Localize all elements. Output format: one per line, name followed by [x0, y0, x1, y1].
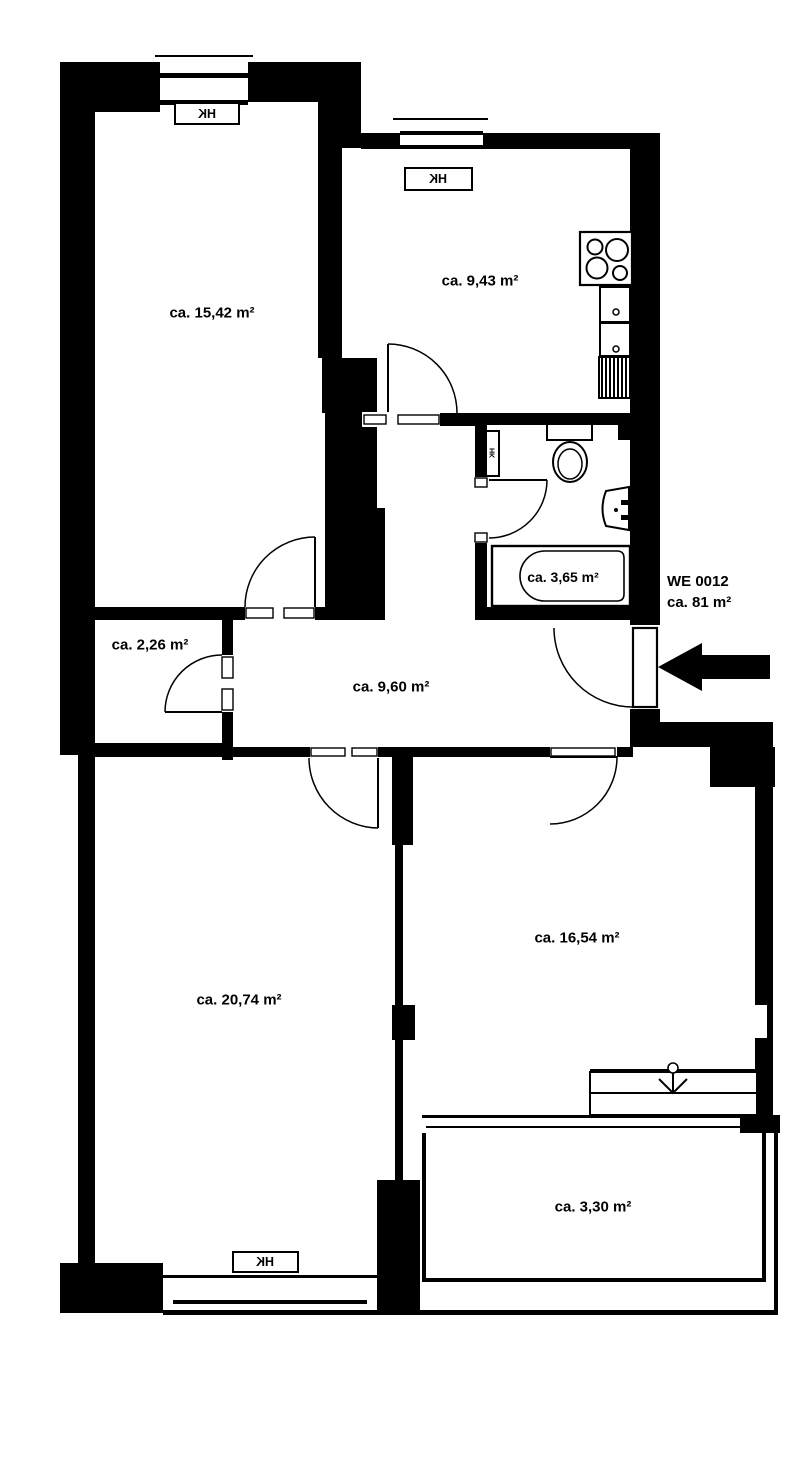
radiator-label-bottom: HK — [256, 1255, 274, 1269]
radiator-label-kitchen: HK — [429, 172, 447, 186]
floor-plan-drawing — [0, 0, 797, 1471]
stove-icon — [580, 232, 632, 285]
kitchen-cabinets — [600, 287, 630, 356]
radiator-label-bathroom: HK — [490, 448, 497, 458]
unit-area: ca. 81 m² — [667, 592, 731, 613]
room-label-kitchen: ca. 9,43 m² — [442, 273, 519, 290]
unit-number: WE 0012 — [667, 571, 731, 592]
bathroom-door — [474, 477, 547, 543]
outer-sill-line — [163, 1310, 778, 1315]
room-label-bathroom: ca. 3,65 m² — [527, 569, 599, 585]
bottom-left-room-door — [309, 745, 378, 828]
unit-info: WE 0012 ca. 81 m² — [667, 571, 731, 613]
entrance-door — [554, 626, 660, 709]
window-top-left-room — [155, 55, 253, 105]
floor-plan: ca. 15,42 m² ca. 9,43 m² ca. 3,65 m² ca.… — [0, 0, 797, 1471]
radiator-label-top-left: HK — [198, 107, 216, 121]
bottom-right-room-door — [550, 745, 617, 824]
room-label-bottom-right: ca. 16,54 m² — [534, 930, 619, 947]
room-label-top-left: ca. 15,42 m² — [169, 305, 254, 322]
room-label-hallway: ca. 9,60 m² — [353, 679, 430, 696]
wall-niche — [755, 1005, 767, 1038]
top-left-room-door — [245, 537, 315, 622]
window-kitchen — [393, 118, 488, 149]
room-label-storage: ca. 2,26 m² — [112, 637, 189, 654]
washbasin-icon — [603, 487, 630, 530]
toilet-icon — [547, 424, 592, 482]
room-label-balcony: ca. 3,30 m² — [555, 1199, 632, 1216]
entrance-arrow-icon — [658, 643, 770, 691]
kitchen-sink-hatch — [599, 357, 632, 398]
window-bottom-left-room — [163, 1275, 377, 1304]
room-label-bottom-left: ca. 20,74 m² — [196, 992, 281, 1009]
storage-door — [165, 655, 234, 712]
